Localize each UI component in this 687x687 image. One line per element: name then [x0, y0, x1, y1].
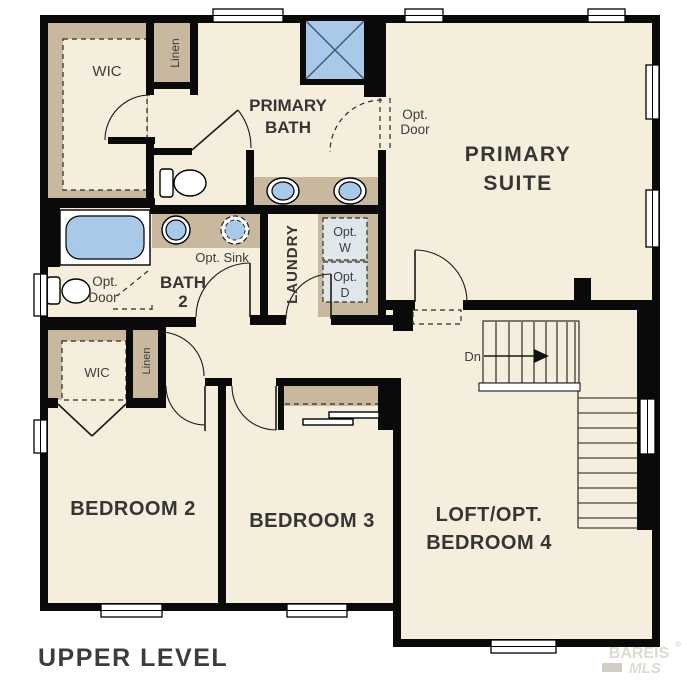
label-linen2: Linen — [141, 348, 153, 375]
label-opt-d-2: D — [340, 286, 349, 300]
shower-icon — [306, 21, 364, 79]
bedroom3-closet-slider — [303, 419, 353, 425]
watermark-sub: MLS — [629, 660, 661, 677]
label-bath2-2: 2 — [178, 292, 187, 311]
bedroom3-closet-shelf — [284, 386, 378, 406]
label-opt-door-left-2: Door — [88, 290, 118, 305]
bath2-toilet-bowl-icon — [62, 279, 90, 303]
bedroom3-closet-slider — [329, 412, 379, 418]
floor-plan-svg: WIC Linen PRIMARY BATH Opt. Door PRIMARY… — [0, 0, 687, 687]
label-stairs-dn: Dn — [464, 349, 481, 364]
primary-toilet-bowl-icon — [174, 170, 206, 196]
watermark-reg: ® — [675, 640, 681, 649]
bath2-toilet-tank-icon — [47, 277, 60, 304]
label-opt-door-top-2: Door — [400, 122, 430, 137]
page-title: UPPER LEVEL — [38, 644, 228, 672]
label-opt-door-top-1: Opt. — [402, 107, 428, 122]
label-bedroom2: BEDROOM 2 — [70, 498, 196, 520]
label-loft-1: LOFT/OPT. — [436, 504, 543, 526]
label-wic2: WIC — [84, 365, 109, 380]
label-wic1: WIC — [92, 63, 121, 80]
stairs-landing-edge — [479, 383, 580, 391]
label-primary-suite-2: SUITE — [483, 172, 552, 195]
label-primary-bath-1: PRIMARY — [249, 96, 327, 115]
watermark-band — [602, 663, 622, 672]
label-opt-d-1: Opt. — [333, 270, 357, 284]
floor-plan-page: WIC Linen PRIMARY BATH Opt. Door PRIMARY… — [0, 0, 687, 687]
wic1-shelf-outline — [63, 39, 147, 190]
label-opt-w-2: W — [339, 241, 351, 255]
bathtub-icon — [66, 216, 144, 259]
label-opt-door-left-1: Opt. — [92, 274, 118, 289]
label-loft-2: BEDROOM 4 — [426, 532, 552, 554]
label-opt-w-1: Opt. — [333, 225, 357, 239]
label-primary-suite-1: PRIMARY — [465, 143, 572, 166]
label-opt-sink: Opt. Sink — [195, 250, 249, 265]
label-primary-bath-2: BATH — [265, 118, 311, 137]
label-laundry: LAUNDRY — [284, 224, 301, 304]
label-bath2-1: BATH — [160, 273, 206, 292]
label-linen1: Linen — [168, 38, 182, 67]
primary-toilet-tank-icon — [160, 169, 173, 197]
label-bedroom3: BEDROOM 3 — [249, 510, 375, 532]
